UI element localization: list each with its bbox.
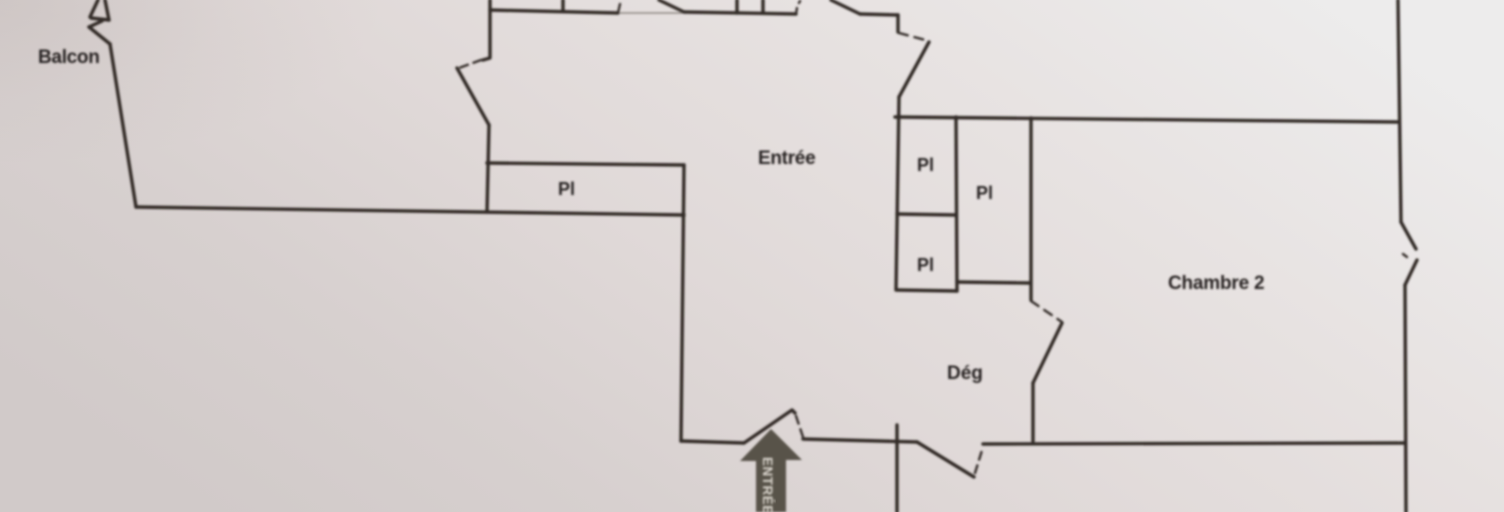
svg-text:Pl: Pl — [558, 179, 575, 199]
svg-text:ENTRÉE: ENTRÉE — [760, 457, 775, 512]
svg-text:Entrée: Entrée — [758, 148, 815, 169]
svg-text:Dég: Dég — [947, 363, 983, 384]
svg-text:Chambre 2: Chambre 2 — [1168, 273, 1264, 294]
svg-text:Balcon: Balcon — [38, 47, 100, 68]
svg-text:Pl: Pl — [917, 255, 934, 275]
svg-text:Pl: Pl — [976, 183, 993, 203]
svg-text:Pl: Pl — [917, 155, 934, 175]
